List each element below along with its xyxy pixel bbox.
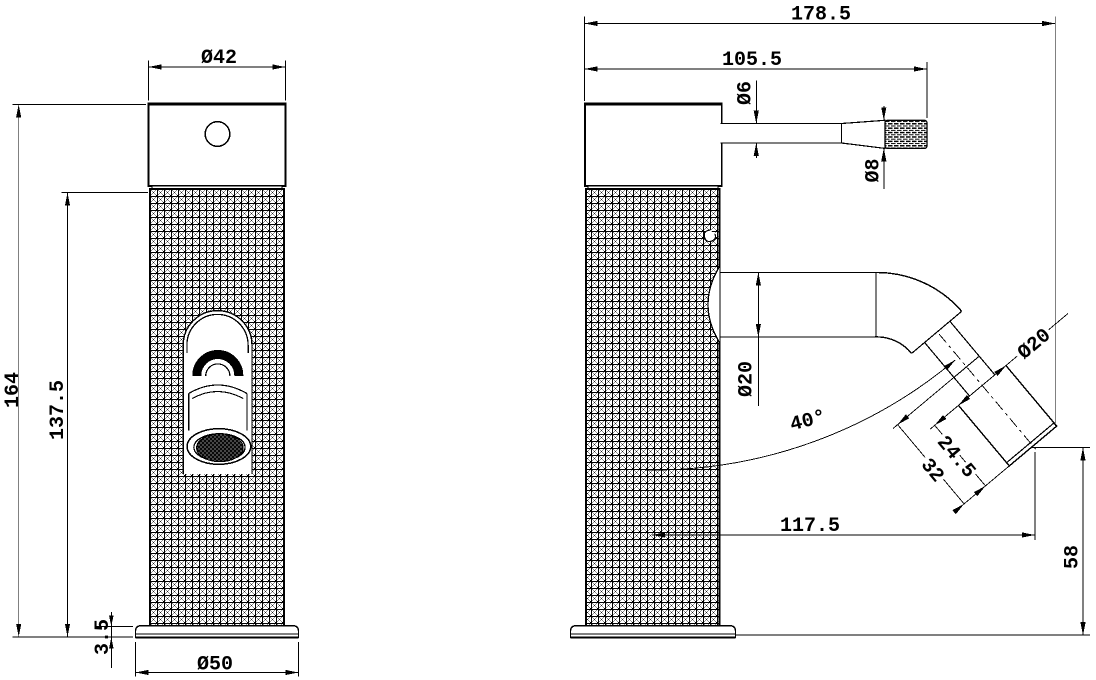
svg-text:137.5: 137.5 <box>47 380 70 440</box>
svg-text:Ø42: Ø42 <box>201 47 237 70</box>
svg-text:Ø6: Ø6 <box>735 81 758 105</box>
svg-text:Ø8: Ø8 <box>863 158 886 182</box>
svg-text:3.5: 3.5 <box>92 619 115 655</box>
svg-text:164: 164 <box>2 372 25 408</box>
svg-text:58: 58 <box>1062 545 1085 569</box>
svg-text:Ø20: Ø20 <box>736 361 759 397</box>
svg-text:Ø50: Ø50 <box>197 654 233 677</box>
svg-text:105.5: 105.5 <box>722 49 782 72</box>
svg-text:117.5: 117.5 <box>780 515 840 538</box>
svg-text:178.5: 178.5 <box>791 4 851 27</box>
